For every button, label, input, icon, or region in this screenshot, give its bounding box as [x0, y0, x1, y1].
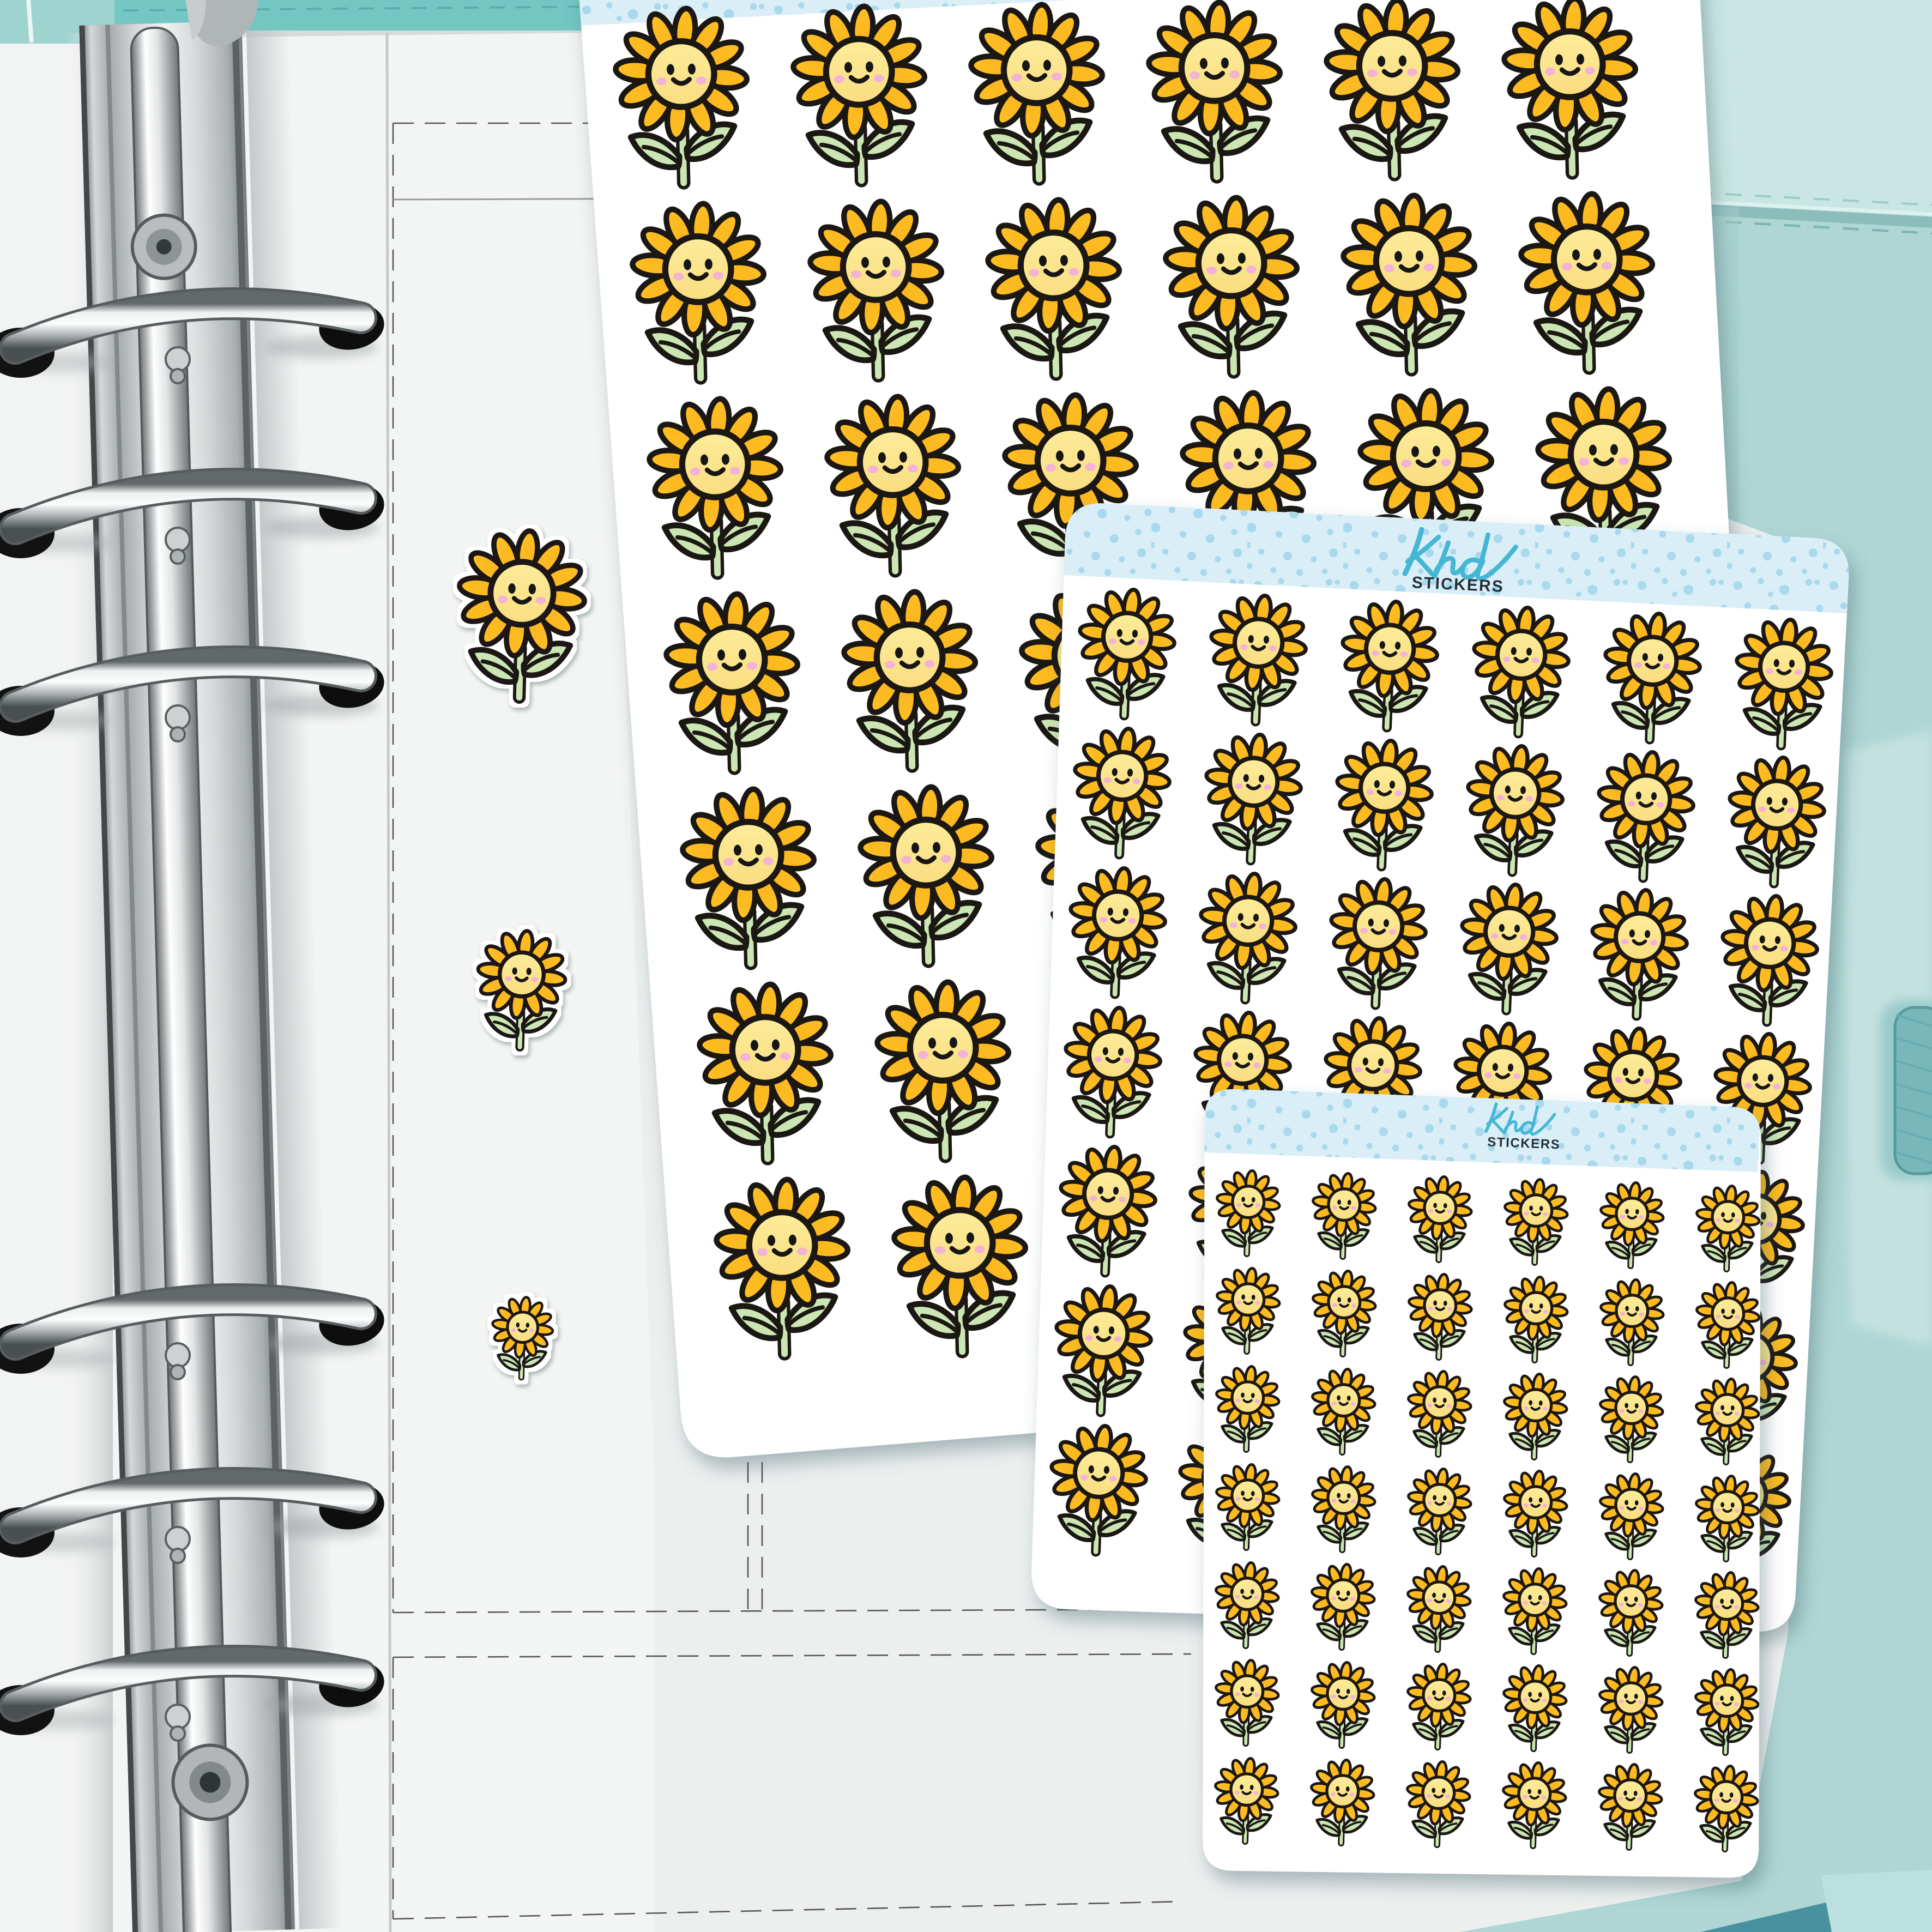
svg-text:STICKERS: STICKERS — [1487, 1134, 1561, 1152]
